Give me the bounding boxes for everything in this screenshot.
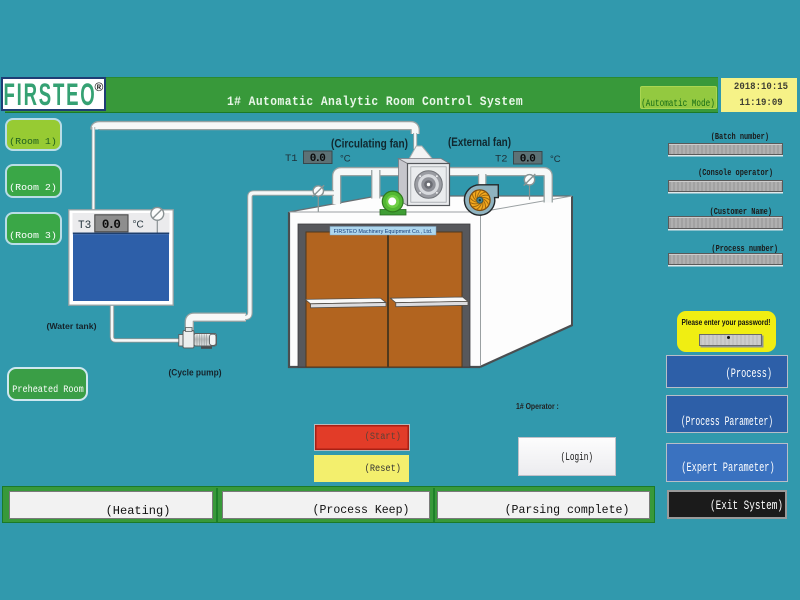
svg-text:(Water tank): (Water tank): [47, 321, 97, 331]
svg-text:FIRSTEO Machinery Equipment Co: FIRSTEO Machinery Equipment Co., Ltd.: [334, 229, 433, 235]
svg-text:T1: T1: [285, 153, 298, 165]
svg-text:°C: °C: [340, 154, 351, 165]
svg-text:(External fan): (External fan): [448, 137, 511, 149]
svg-text:T3: T3: [78, 220, 91, 232]
svg-text:0.0: 0.0: [102, 218, 121, 232]
svg-text:°C: °C: [550, 154, 561, 165]
svg-text:T2: T2: [495, 154, 508, 166]
svg-text:0.0: 0.0: [310, 153, 326, 165]
svg-text:°C: °C: [133, 219, 144, 230]
svg-text:(Circulating fan): (Circulating fan): [331, 139, 408, 151]
svg-text:0.0: 0.0: [520, 154, 536, 166]
svg-text:(Cycle pump): (Cycle pump): [169, 368, 222, 378]
